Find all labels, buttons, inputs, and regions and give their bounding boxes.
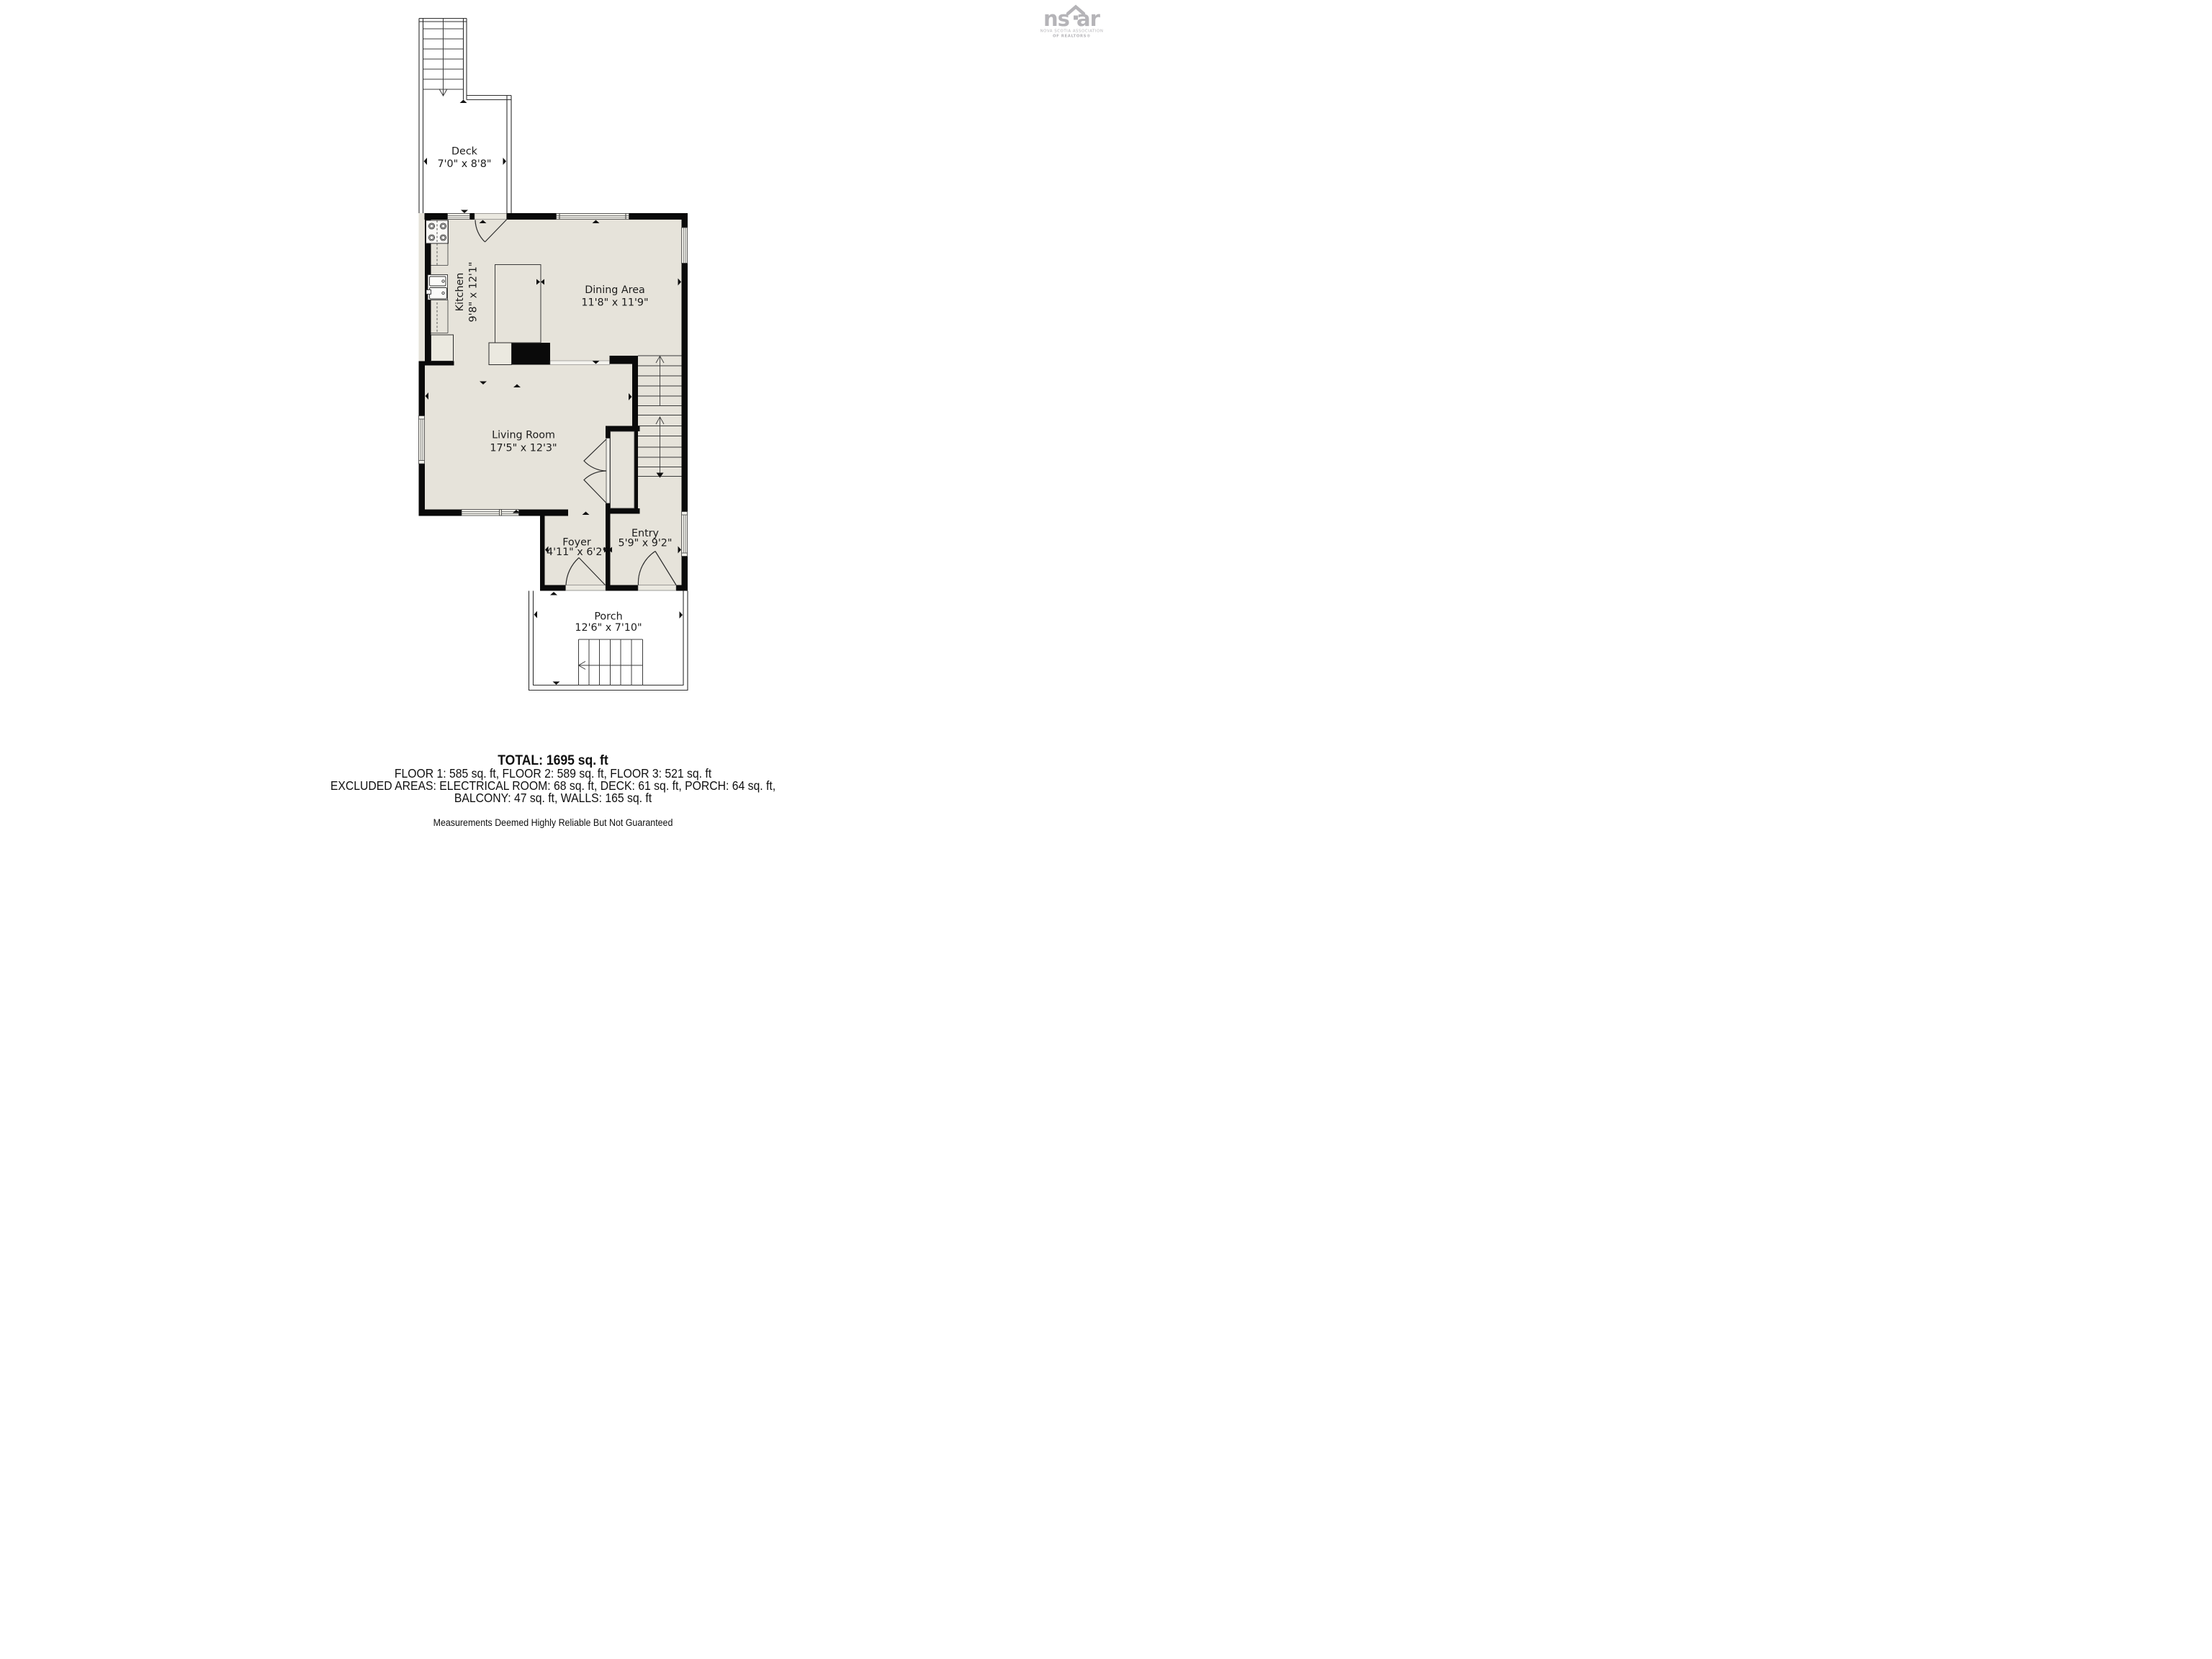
logo-tagline: NOVA SCOTIA ASSOCIATION (1040, 30, 1104, 34)
excluded-areas-text2: BALCONY: 47 sq. ft, WALLS: 165 sq. ft (55, 792, 1051, 804)
deck-dims: 7'0" x 8'8" (438, 158, 492, 170)
entry-dims: 5'9" x 9'2" (619, 538, 673, 549)
entry-door-threshold (638, 585, 676, 591)
porch-floor-area (534, 591, 684, 685)
window-entry-right (682, 512, 688, 557)
living-label: Living Room (492, 430, 555, 441)
deck-stairs-right-rail (464, 19, 467, 100)
kitchen-dims: 9'8" x 12'1" (468, 261, 480, 322)
foyer-door-threshold (566, 585, 606, 591)
disclaimer-text: Measurements Deemed Highly Reliable But … (44, 817, 1061, 828)
logo-brand-right: ar (1076, 6, 1101, 31)
wall-entry-bottom (611, 585, 639, 591)
wall-top (470, 213, 475, 220)
wall-top (629, 213, 688, 220)
sink-icon (426, 275, 448, 300)
kitchen-door-threshold (475, 214, 507, 220)
window-dining-top (557, 214, 629, 220)
wall-right (682, 264, 688, 512)
dining-label: Dining Area (585, 284, 645, 296)
area-summary: TOTAL: 1695 sq. ft FLOOR 1: 585 sq. ft, … (0, 754, 1106, 828)
living-dims: 17'5" x 12'3" (490, 443, 557, 454)
window-dining-right (682, 228, 688, 264)
nsar-logo: ns ar NOVA SCOTIA ASSOCIATION OF REALTOR… (1040, 6, 1104, 39)
stove-icon (426, 220, 449, 243)
deck-top-rail (467, 96, 511, 100)
floorplan-drawing: Deck 7'0" x 8'8" Kitchen 9'8" x 12'1" Di… (0, 0, 1106, 829)
wall-top (507, 213, 557, 220)
wall-foyer-bottom (540, 585, 566, 591)
wall-island-block (512, 343, 551, 365)
window-living-left (419, 416, 425, 464)
foyer-dims: 4'11" x 6'2" (547, 547, 607, 558)
porch-dims: 12'6" x 7'10" (575, 622, 642, 634)
wall-living-left (419, 464, 426, 516)
window-kitchen-top (448, 214, 470, 220)
island-table (495, 265, 541, 343)
closet-interior (611, 431, 635, 508)
deck-rail-right (507, 96, 511, 214)
dining-dims: 11'8" x 11'9" (581, 297, 648, 309)
wall-right (682, 213, 688, 228)
wall-living-bottom (419, 510, 462, 516)
wall-living-bottom (519, 510, 569, 516)
wall-dining-bottom-stub (610, 356, 637, 364)
floorplan-page: Deck 7'0" x 8'8" Kitchen 9'8" x 12'1" Di… (0, 0, 1106, 829)
deck-label: Deck (451, 146, 478, 158)
island-cabinet (489, 343, 512, 365)
floor-transition-strip (550, 361, 610, 365)
wall-entry-bottom (676, 585, 688, 591)
logo-brand-left: ns (1043, 6, 1069, 31)
fridge-box (431, 335, 454, 361)
porch-label: Porch (594, 611, 622, 623)
wall-living-left (419, 361, 426, 416)
kitchen-label: Kitchen (454, 273, 466, 312)
wall-foyer-left (540, 516, 545, 591)
logo-tagline2: OF REALTORS® (1053, 35, 1091, 39)
closet-door-panel (606, 439, 610, 504)
window-living-bottom (462, 510, 519, 516)
